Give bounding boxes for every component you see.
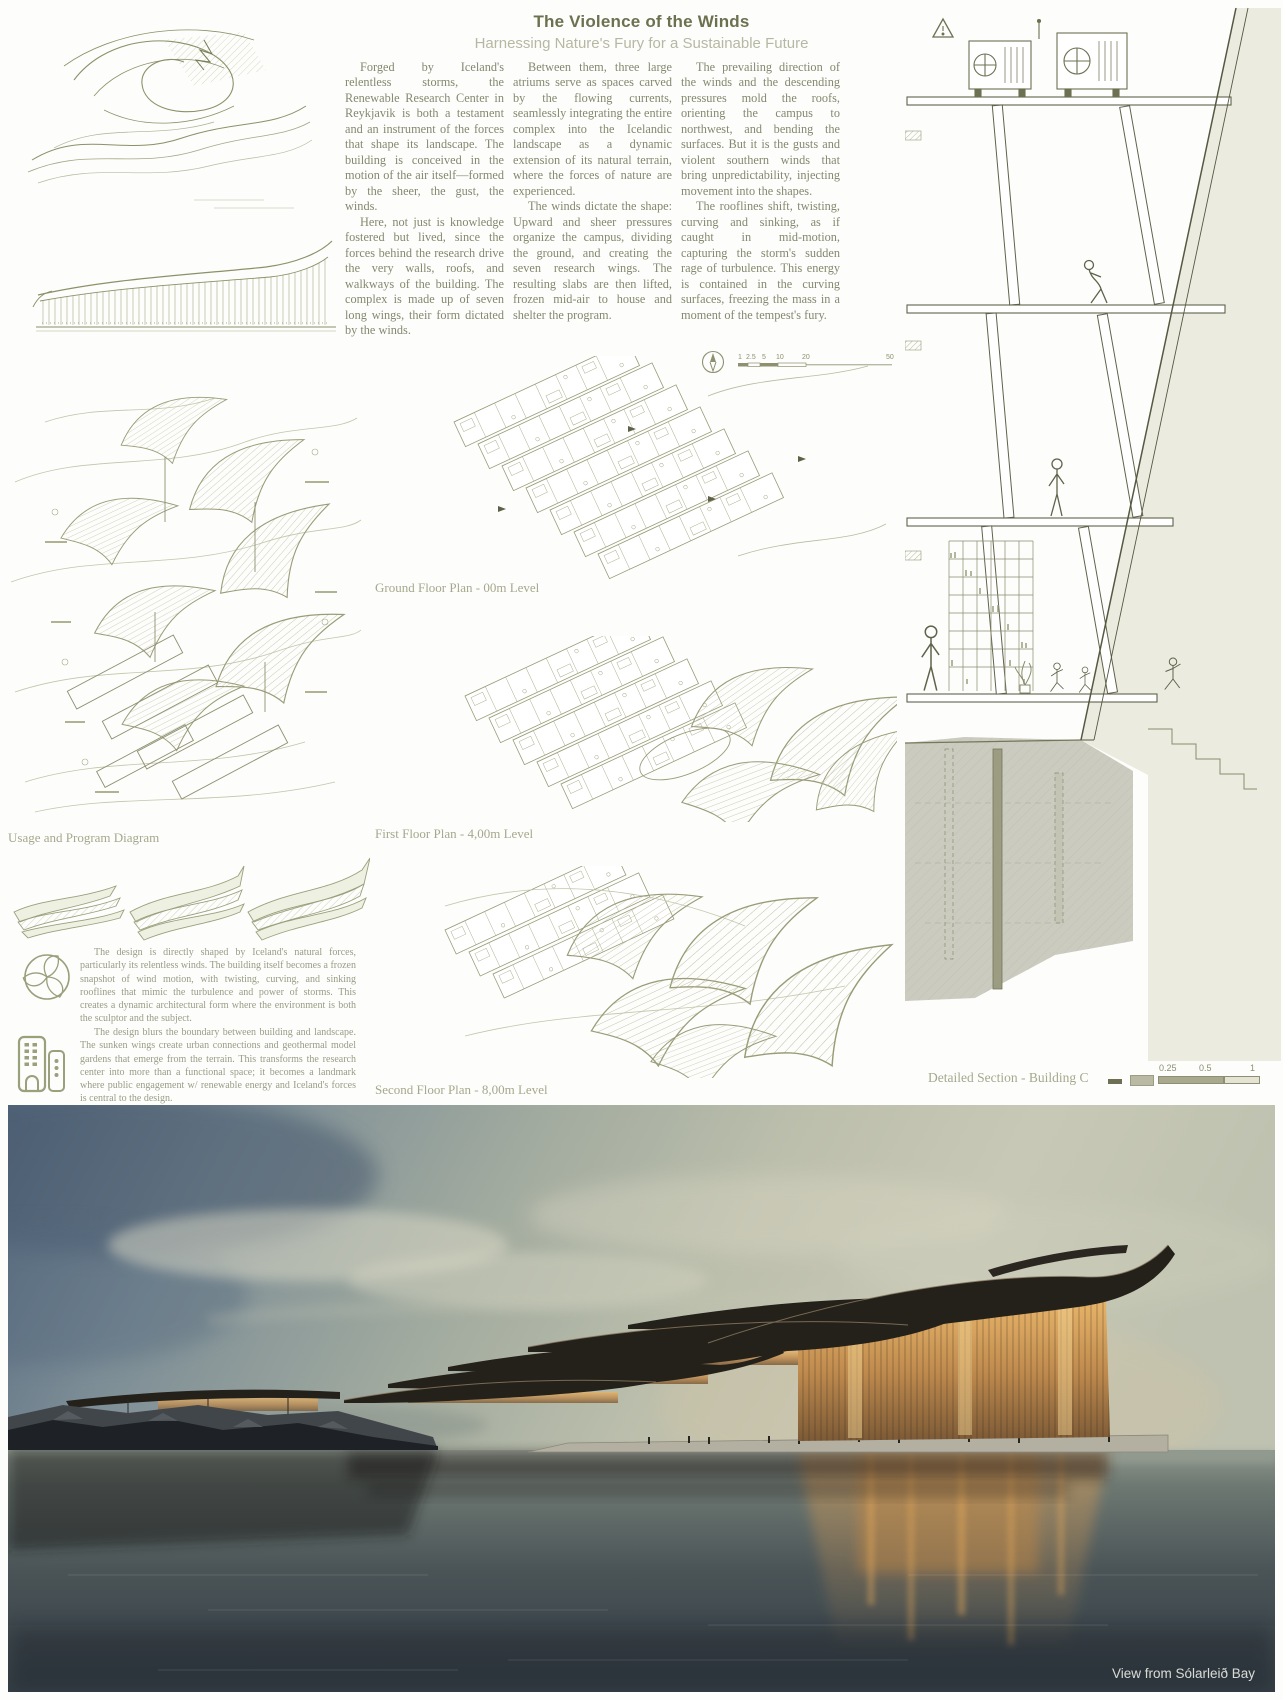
- legend-swatch-gray: [1130, 1075, 1154, 1086]
- section-scale-bar: [1158, 1076, 1224, 1084]
- urban-paragraph: The design blurs the boundary between bu…: [80, 1026, 356, 1106]
- legend-swatch-dark: [1108, 1079, 1122, 1084]
- second-floor-plan-figure: [385, 866, 897, 1078]
- eco-paragraph: The design is directly shaped by Iceland…: [80, 946, 356, 1026]
- scale-label: 0.25: [1159, 1063, 1177, 1073]
- plan-caption: First Floor Plan - 4,00m Level: [375, 826, 533, 842]
- scale-label: 0.5: [1199, 1063, 1212, 1073]
- rooftop-equipment: [933, 19, 1127, 97]
- first-floor-plan-figure: [385, 636, 897, 822]
- intro-column-1: Forged by Iceland's relentless storms, t…: [345, 60, 504, 339]
- intro-paragraph: Here, not just is knowledge fostered but…: [345, 215, 504, 339]
- buildings-icon: [16, 1035, 68, 1093]
- scale-label: 1: [1250, 1063, 1255, 1073]
- render-caption: View from Sólarleið Bay: [1112, 1666, 1255, 1681]
- bookshelf: [949, 541, 1033, 691]
- wind-leaf-icon: [22, 948, 72, 1006]
- intro-paragraph: The winds dictate the shape: Upward and …: [513, 199, 672, 323]
- wind-sketch-figure: [14, 10, 326, 225]
- usage-program-diagram-figure: [5, 362, 363, 824]
- roof-sketches-figure: [8, 852, 370, 944]
- render-photo: View from Sólarleið Bay: [8, 1105, 1275, 1692]
- warning-triangle-icon: [933, 19, 953, 37]
- usage-diagram-caption: Usage and Program Diagram: [8, 830, 159, 846]
- ground-floor-plan-figure: [378, 356, 890, 580]
- plan-caption: Second Floor Plan - 8,00m Level: [375, 1082, 548, 1098]
- intro-paragraph: Forged by Iceland's relentless storms, t…: [345, 60, 504, 215]
- plan-caption: Ground Floor Plan - 00m Level: [375, 580, 539, 596]
- intro-paragraph: Between them, three large atriums serve …: [513, 60, 672, 199]
- intro-paragraph: The prevailing direction of the winds an…: [681, 60, 840, 199]
- detailed-section-figure: [905, 3, 1281, 1061]
- presentation-board: The Violence of the Winds Harnessing Nat…: [0, 0, 1283, 1700]
- elevation-sketch-figure: [28, 235, 348, 353]
- intro-column-3: The prevailing direction of the winds an…: [681, 60, 840, 323]
- intro-column-2: Between them, three large atriums serve …: [513, 60, 672, 323]
- intro-paragraph: The rooflines shift, twisting, curving a…: [681, 199, 840, 323]
- section-caption: Detailed Section - Building C: [928, 1070, 1088, 1086]
- section-scale-bar-segment: [1224, 1076, 1260, 1084]
